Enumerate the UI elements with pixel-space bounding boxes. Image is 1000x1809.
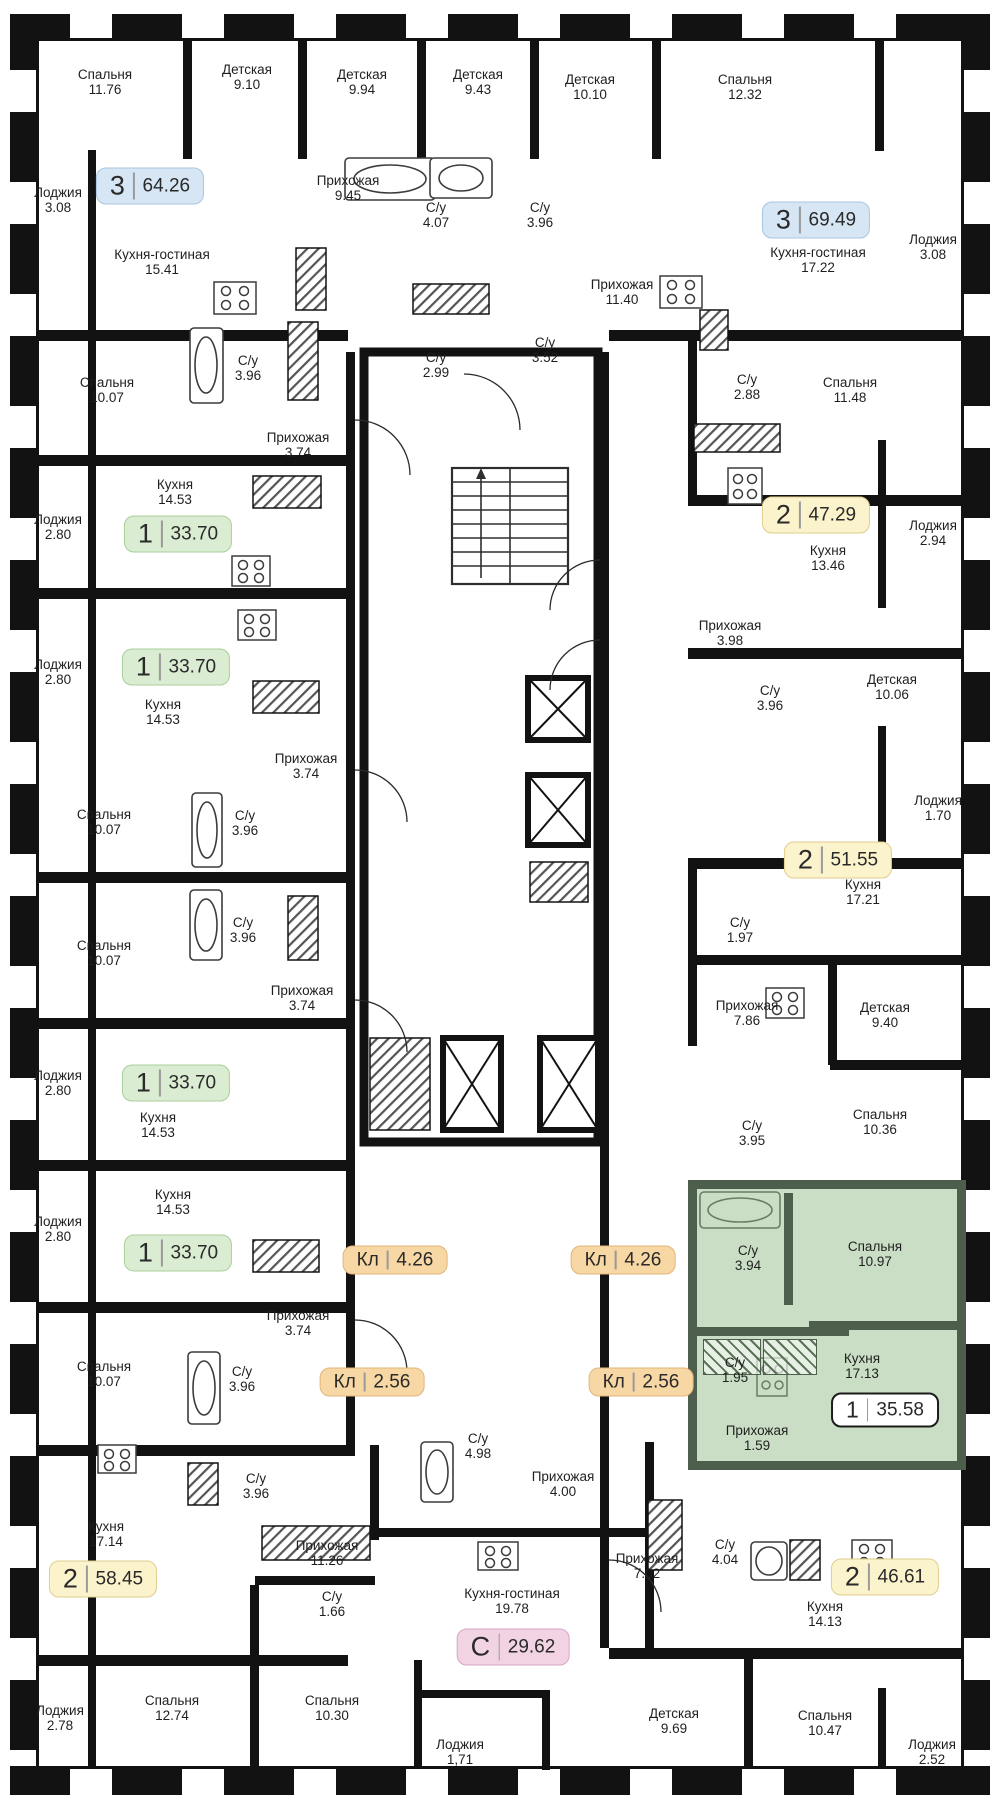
room-label: Прихожая3.74 (271, 983, 334, 1013)
apartment-badge-1-33b[interactable]: 133.70 (122, 649, 230, 686)
badge-divider (159, 1070, 161, 1097)
room-label: С/у2.88 (734, 372, 760, 402)
room-label: Кухня14.13 (807, 1599, 843, 1629)
room-label: Кухня17.14 (88, 1519, 124, 1549)
room-label: Детская9.94 (337, 67, 387, 97)
room-label: С/у4.98 (465, 1431, 491, 1461)
room-label: Спальня10.47 (798, 1708, 852, 1738)
apartment-badge-3-64[interactable]: 364.26 (96, 168, 204, 205)
room-label: Лоджия2.80 (34, 1214, 82, 1244)
room-label: Кухня-гостиная19.78 (464, 1586, 560, 1616)
badge-divider (161, 1240, 163, 1267)
room-label: Лоджия2.80 (34, 1068, 82, 1098)
studio-badge-29-62[interactable]: С29.62 (457, 1629, 570, 1666)
badge-divider (799, 502, 801, 529)
room-label: С/у4.07 (423, 200, 449, 230)
room-label: Прихожая3.74 (267, 1308, 330, 1338)
room-label: Кухня14.53 (155, 1187, 191, 1217)
room-label: Прихожая4.00 (532, 1469, 595, 1499)
room-label: С/у1.95 (722, 1355, 748, 1385)
room-label: Лоджия2.94 (909, 518, 957, 548)
room-label: Прихожая9.45 (317, 173, 380, 203)
room-label: Лоджия2.80 (34, 512, 82, 542)
room-label: С/у3.52 (532, 335, 558, 365)
badge-divider (867, 1399, 869, 1422)
storage-badge-2-56b[interactable]: Кл2.56 (589, 1368, 694, 1397)
storage-badge-4-26a[interactable]: Кл4.26 (343, 1246, 448, 1275)
room-label: С/у3.94 (735, 1243, 761, 1273)
room-label: С/у3.96 (757, 683, 783, 713)
room-label: Спальня11.76 (78, 67, 132, 97)
room-label: Кухня14.53 (157, 477, 193, 507)
badge-divider (498, 1634, 500, 1661)
room-label: Спальня10.30 (305, 1693, 359, 1723)
highlight-wall (809, 1321, 966, 1330)
room-label: С/у3.95 (739, 1118, 765, 1148)
badge-divider (161, 521, 163, 548)
room-label: Прихожая11.26 (296, 1538, 359, 1568)
apartment-badge-1-33a[interactable]: 133.70 (124, 516, 232, 553)
room-label: Лоджия1.70 (914, 793, 962, 823)
room-label: Кухня17.21 (845, 877, 881, 907)
room-label: С/у3.96 (230, 915, 256, 945)
room-label: Прихожая1.59 (726, 1423, 789, 1453)
room-label: Лоджия3.08 (34, 185, 82, 215)
floor-plan: Спальня11.76 Детская9.10 Детская9.94 Дет… (0, 0, 1000, 1809)
room-label: Спальня11.48 (823, 375, 877, 405)
apartment-badge-1-35-selected[interactable]: 135.58 (831, 1393, 939, 1428)
room-label: Лоджия2.52 (908, 1737, 956, 1767)
badge-divider (615, 1251, 617, 1270)
badge-divider (364, 1373, 366, 1392)
apartment-badge-2-47[interactable]: 247.29 (762, 497, 870, 534)
room-label: Кухня-гостиная17.22 (770, 245, 866, 275)
room-label: Спальня12.74 (145, 1693, 199, 1723)
room-label: Прихожая11.40 (591, 277, 654, 307)
room-label: С/у1.66 (319, 1589, 345, 1619)
badge-divider (799, 207, 801, 234)
badge-divider (159, 654, 161, 681)
apartment-badge-2-51[interactable]: 251.55 (784, 842, 892, 879)
room-label: Кухня-гостиная15.41 (114, 247, 210, 277)
room-label: Кухня17.13 (844, 1351, 880, 1381)
room-label: Детская9.69 (649, 1706, 699, 1736)
badge-divider (86, 1566, 88, 1593)
room-label: Кухня13.46 (810, 543, 846, 573)
room-label: Спальня10.36 (853, 1107, 907, 1137)
highlight-wall (784, 1193, 793, 1305)
apartment-badge-2-58[interactable]: 258.45 (49, 1561, 157, 1598)
room-label: Спальня10.07 (77, 807, 131, 837)
room-label: Детская10.06 (867, 672, 917, 702)
room-label: С/у3.96 (527, 200, 553, 230)
room-label: Прихожая7.86 (716, 998, 779, 1028)
badge-divider (868, 1564, 870, 1591)
apartment-badge-1-33c[interactable]: 133.70 (122, 1065, 230, 1102)
room-label: С/у1.97 (727, 915, 753, 945)
room-label: Спальня10.07 (77, 938, 131, 968)
room-label: С/у4.04 (712, 1537, 738, 1567)
room-label: С/у3.96 (235, 353, 261, 383)
room-label: Кухня14.53 (145, 697, 181, 727)
room-label: Детская9.40 (860, 1000, 910, 1030)
apartment-badge-2-46[interactable]: 246.61 (831, 1559, 939, 1596)
room-label: Детская9.10 (222, 62, 272, 92)
badge-divider (387, 1251, 389, 1270)
room-label: С/у3.96 (229, 1364, 255, 1394)
room-label: Лоджия1,71 (436, 1737, 484, 1767)
room-label: Лоджия2.78 (36, 1703, 84, 1733)
badge-divider (821, 847, 823, 874)
room-label: Спальня10.07 (80, 375, 134, 405)
highlight-shaft-hatch (763, 1339, 817, 1375)
badge-divider (133, 173, 135, 200)
storage-badge-4-26b[interactable]: Кл4.26 (571, 1246, 676, 1275)
apartment-badge-1-33d[interactable]: 133.70 (124, 1235, 232, 1272)
room-label: Спальня10.97 (848, 1239, 902, 1269)
room-label: Лоджия3.08 (909, 232, 957, 262)
room-label: Прихожая3.74 (267, 430, 330, 460)
room-label: Детская10.10 (565, 72, 615, 102)
room-label: С/у3.96 (243, 1471, 269, 1501)
badge-divider (633, 1373, 635, 1392)
storage-badge-2-56a[interactable]: Кл2.56 (320, 1368, 425, 1397)
room-label: Кухня14.53 (140, 1110, 176, 1140)
room-label: Спальня12.32 (718, 72, 772, 102)
room-label: Спальня10.07 (77, 1359, 131, 1389)
room-label: С/у2.99 (423, 350, 449, 380)
room-label: Прихожая3.98 (699, 618, 762, 648)
room-label: Прихожая3.74 (275, 751, 338, 781)
room-label: С/у3.96 (232, 808, 258, 838)
room-label: Лоджия2.80 (34, 657, 82, 687)
room-label: Прихожая7.02 (616, 1551, 679, 1581)
apartment-badge-3-69[interactable]: 369.49 (762, 202, 870, 239)
room-label: Детская9.43 (453, 67, 503, 97)
